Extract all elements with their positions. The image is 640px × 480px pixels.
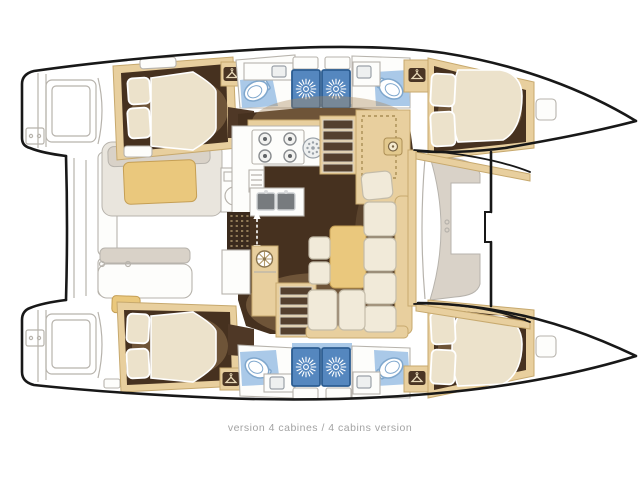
salon-cabinet [222, 250, 250, 294]
hanger-icon [409, 68, 426, 82]
floor-plan-drawing [0, 0, 640, 480]
sink [357, 66, 371, 78]
hanger-icon [409, 371, 426, 385]
cockpit-bench-cushion [123, 159, 197, 204]
cockpit-table [98, 264, 192, 298]
mast-step [485, 212, 491, 242]
nav-cabinet [356, 110, 410, 204]
pillow [126, 348, 149, 378]
port-bow-hatch [536, 99, 556, 120]
sink [270, 377, 284, 389]
double-sink [277, 193, 295, 210]
sofa-cushion [364, 306, 396, 332]
stove-burner-icon [259, 150, 271, 162]
salon-table [330, 226, 366, 288]
double-bed [452, 70, 522, 142]
deck-hatch [293, 388, 318, 399]
aft-platform-edge [66, 156, 67, 300]
sofa-cushion [364, 273, 396, 304]
pillow [127, 77, 151, 104]
pillow [127, 107, 151, 138]
sink [272, 66, 286, 77]
sofa-cushion [364, 202, 396, 236]
stove-burner-icon [259, 133, 271, 145]
salon [222, 96, 416, 338]
starboard-bow-hatch [536, 336, 556, 357]
ottoman [309, 237, 330, 259]
plan-caption: version 4 cabines / 4 cabins version [0, 422, 640, 434]
deck-hatch [325, 57, 350, 69]
pillow [126, 313, 149, 343]
sofa-cushion [308, 290, 337, 330]
helm-cabinet [252, 246, 278, 316]
ottoman [309, 262, 330, 284]
cabin-aft-starboard [117, 302, 254, 392]
salon-front-wall [408, 150, 416, 306]
forward-cockpit-seat [430, 157, 480, 300]
boat-floor-plan: version 4 cabines / 4 cabins version [0, 0, 640, 480]
companionway-steps-port [320, 116, 356, 174]
sofa-cushion [339, 290, 365, 330]
double-sink [257, 193, 275, 210]
forward-crossbeam [485, 152, 491, 306]
hanger-icon [223, 372, 240, 386]
pillow [430, 111, 456, 146]
bathroom-aft-port [236, 55, 295, 108]
sofa-cushion [364, 238, 396, 271]
pillow [430, 349, 456, 384]
deck-hatch [124, 146, 152, 157]
double-bed [151, 312, 216, 382]
double-bed [151, 72, 216, 150]
stove-burner-icon [284, 133, 296, 145]
nav-seat-cushion [361, 171, 394, 201]
stove-burner-icon [284, 150, 296, 162]
pillow [430, 73, 456, 106]
bathroom-aft-starboard [238, 345, 295, 398]
deck-hatch [293, 57, 318, 69]
sink [357, 376, 371, 388]
